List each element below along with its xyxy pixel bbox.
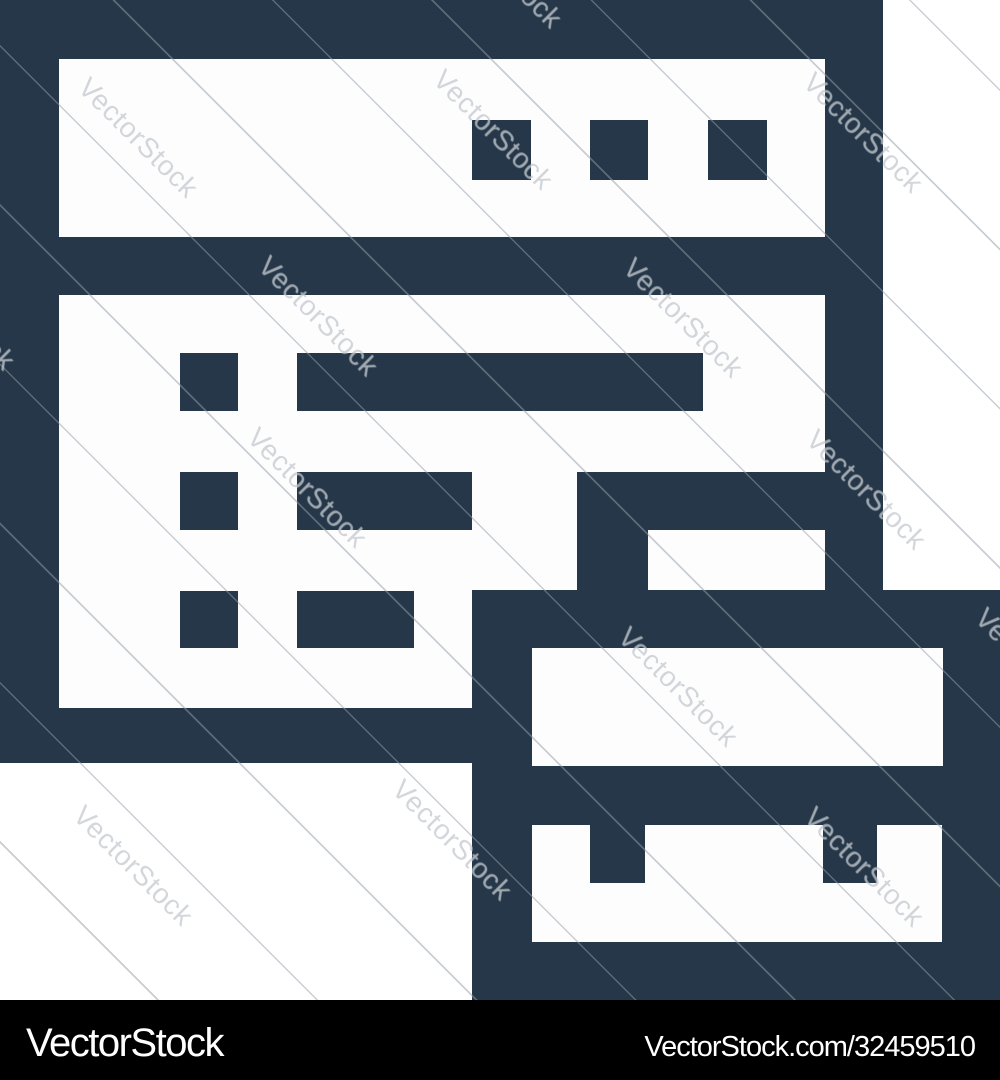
stock-image-page: VectorStockVectorStockVectorStockVectorS…	[0, 0, 1000, 1080]
content-row3-bullet	[180, 591, 238, 648]
titlebar-square-1	[472, 120, 531, 180]
content-row2-bullet	[180, 472, 238, 530]
titlebar-square-2	[590, 120, 648, 180]
image-credit-url: VectorStock.com/32459510	[644, 1031, 975, 1064]
content-row1-bullet	[180, 353, 238, 411]
server-block-slot-small	[648, 530, 825, 592]
notch-1	[590, 825, 645, 883]
vectorstock-brand-logo: VectorStock	[26, 1021, 223, 1066]
content-row1-bar	[297, 353, 703, 411]
titlebar-square-3	[708, 120, 767, 180]
watermark-text: VectorStock	[67, 800, 200, 933]
server-block-panel	[532, 648, 943, 766]
content-row3-bar	[297, 591, 414, 648]
content-row2-bar	[297, 472, 472, 530]
notch-2	[823, 825, 877, 883]
